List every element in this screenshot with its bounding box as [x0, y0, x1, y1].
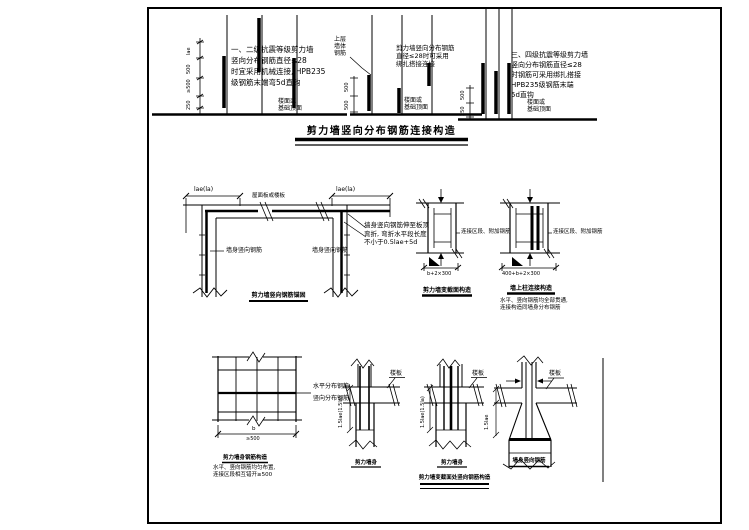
corner-dim-left-label: lae(la) [194, 186, 213, 194]
detail3-caption: 剪力墙身 [437, 460, 467, 467]
corner-right-bar-label: 墙身竖向钢筋 [312, 247, 348, 255]
panel3-note-line: 三、四级抗震等级剪力墙 [511, 50, 588, 60]
detail4-slab-label: 楼板 [549, 370, 561, 378]
detail1-label-top: 水平分布钢筋 [313, 383, 349, 391]
detailA-caption: 剪力墙变截面构造 [421, 287, 473, 295]
panel1-note-line: 级钢筋末端弯5d直钩 [231, 77, 325, 88]
panel1-dim-label: ≥500 [186, 79, 192, 93]
corner-side-note-line: 弯折, 弯折水平段长度 [364, 230, 429, 239]
ground-label-line: 楼面或 [404, 97, 428, 104]
corner-side-note: 墙身竖向钢筋伸至板顶 弯折, 弯折水平段长度 不小于0.5lae+5d [364, 221, 429, 247]
ground-label-line: 楼面或 [527, 99, 551, 106]
corner-label-line: 墙体 [334, 43, 346, 50]
row1-title: 剪力墙竖向分布钢筋连接构造 [295, 126, 468, 139]
detailB-note-line: 水平、竖向钢筋均全部贯通, [500, 298, 568, 305]
panel1-ground-label: 楼面或 基础顶面 [278, 98, 302, 112]
panel3-note: 三、四级抗震等级剪力墙 竖向分布钢筋直径≤28 时钢筋可采用绑扎搭接 HPB23… [511, 50, 588, 100]
detail2-caption: 剪力墙身 [351, 460, 381, 467]
detail3-slab-label: 楼板 [472, 370, 484, 378]
detailA-side-label: 连接区段、附加钢筋 [461, 229, 511, 236]
ground-label-line: 楼面或 [278, 98, 302, 105]
detail1-note-line: 连接区段相互错开≥500 [213, 472, 275, 479]
panel3-note-line: HPB235级钢筋末端 [511, 80, 588, 90]
ground-label-line: 基础顶面 [278, 105, 302, 112]
detail1-notes: 水平、竖向钢筋均匀布置, 连接区段相互错开≥500 [213, 465, 275, 478]
drawing-sheet: 一、二级抗震等级剪力墙 竖向分布钢筋直径≤28 时宜采用机械连接, HPB235… [0, 0, 749, 530]
detailB-caption: 墙上柱连接构造 [506, 285, 556, 293]
panel1-note-line: 竖向分布钢筋直径≤28 [231, 55, 325, 66]
panel2-note-line: 绑扎搭接连接 [396, 60, 455, 68]
corner-label-line: 上层 [334, 36, 346, 43]
panel3-note-line: 竖向分布钢筋直径≤28 [511, 60, 588, 70]
detailB-dim-label: 400+b+2×300 [502, 271, 540, 277]
panel2-note-line: 剪力墙竖向分布钢筋 [396, 44, 455, 52]
corner-slab-label: 屋面板或楼板 [252, 193, 285, 200]
detail1-note-line: 水平、竖向钢筋均匀布置, [213, 465, 275, 472]
panel1-dim-label: lae [186, 47, 192, 55]
corner-side-note-line: 墙身竖向钢筋伸至板顶 [364, 221, 429, 230]
corner-dim-right-label: lae(la) [336, 186, 355, 194]
detailA-dim-label: b+2×300 [427, 271, 451, 277]
corner-side-note-line: 不小于0.5lae+5d [364, 238, 429, 247]
detailB-linework [499, 189, 560, 294]
detailB-notes: 水平、竖向钢筋均全部贯通, 连接构造同墙身分布钢筋 [500, 298, 568, 312]
row1-title-rules [295, 140, 468, 146]
panel2-note: 剪力墙竖向分布钢筋 直径≤28时可采用 绑扎搭接连接 [396, 44, 455, 68]
detail2-dim-label: 1.5lae(1.5la) [338, 396, 344, 428]
detail4-dim-label: 1.5lae [484, 415, 490, 430]
detail4-taper-wall-linework [493, 356, 577, 469]
ground-label-line: 基础顶面 [404, 104, 428, 111]
panel2-dim-label: 500 [344, 100, 350, 110]
detail1-caption: 剪力墙身钢筋构造 [222, 455, 268, 462]
panel2-dim-label: 500 [344, 82, 350, 92]
row3-title-rules [420, 484, 489, 489]
panel3-note-line: 时钢筋可采用绑扎搭接 [511, 70, 588, 80]
ground-label-line: 基础顶面 [527, 106, 551, 113]
corner-label-line: 钢筋 [334, 50, 346, 57]
panel3-dim-label: 250 [460, 106, 466, 116]
detailB-note-line: 连接构造同墙身分布钢筋 [500, 305, 568, 312]
panel1-note: 一、二级抗震等级剪力墙 竖向分布钢筋直径≤28 时宜采用机械连接, HPB235… [231, 44, 325, 88]
detail3-dim-label: 1.5lae(1.5la) [420, 396, 426, 428]
row3-title: 剪力墙变截面处竖向钢筋构造 [418, 475, 491, 482]
panel1-note-line: 时宜采用机械连接, HPB235 [231, 66, 325, 77]
panel1-note-line: 一、二级抗震等级剪力墙 [231, 44, 325, 55]
detail1-wall-elevation-linework [212, 352, 311, 463]
detail4-caption: 墙身竖向钢筋 [509, 458, 549, 465]
detail1-dim-bottom: ≥500 [246, 436, 260, 442]
panel1-dim-label: 500 [186, 64, 192, 74]
panel2-corner-label: 上层 墙体 钢筋 [334, 36, 346, 57]
panel2-ground-label: 楼面或 基础顶面 [404, 97, 428, 111]
panel3-dim-label: 500 [460, 90, 466, 100]
panel3-ground-label: 楼面或 基础顶面 [527, 99, 551, 113]
detailB-side-label: 连接区段、附加钢筋 [553, 229, 603, 236]
panel1-dim-label: 250 [186, 100, 192, 110]
corner-left-bar-label: 墙身竖向钢筋 [226, 247, 262, 255]
detail2-slab-label: 楼板 [390, 370, 402, 378]
detail1-dim-top: b [252, 426, 256, 433]
corner-anchorage-linework [183, 193, 393, 301]
panel2-note-line: 直径≤28时可采用 [396, 52, 455, 60]
corner-caption: 剪力墙竖向钢筋锚固 [249, 292, 308, 300]
drawing-linework [0, 0, 749, 530]
